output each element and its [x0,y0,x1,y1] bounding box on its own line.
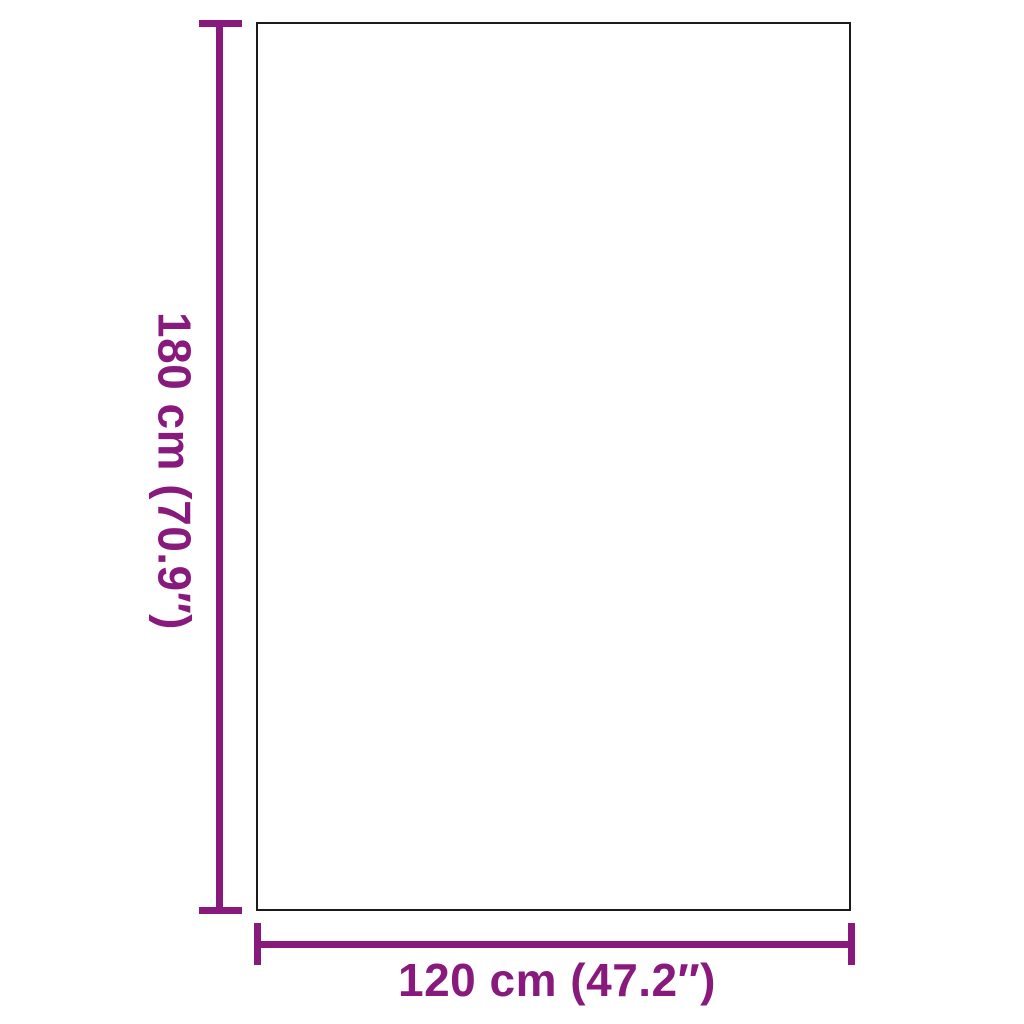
dimension-diagram: 180 cm (70.9″) 120 cm (47.2″) [0,0,1024,1024]
horizontal-dimension-cap-right [848,923,855,965]
horizontal-dimension-cap-left [254,923,261,965]
height-dimension-label: 180 cm (70.9″) [148,312,201,630]
horizontal-dimension-line [257,941,852,948]
width-dimension-label: 120 cm (47.2″) [398,954,716,1007]
vertical-dimension-cap-bottom [199,907,242,914]
vertical-dimension-cap-top [199,20,242,27]
product-outline-rectangle [256,22,851,911]
vertical-dimension-line [216,22,223,911]
